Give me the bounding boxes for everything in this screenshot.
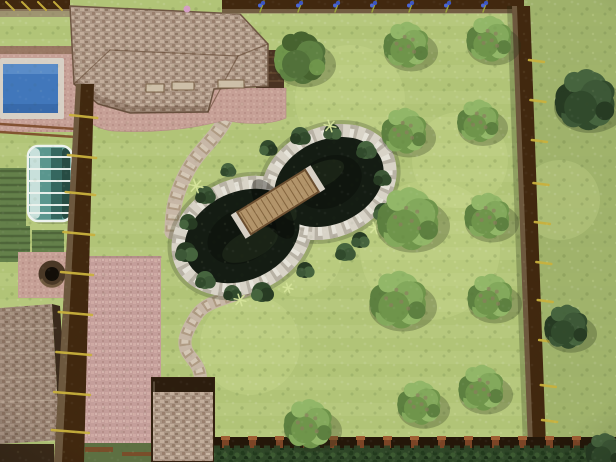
vignette: [0, 0, 616, 462]
garden-3d-render: 3D top-down render of a landscaped backy…: [0, 0, 616, 462]
scene-canvas: [0, 0, 616, 462]
